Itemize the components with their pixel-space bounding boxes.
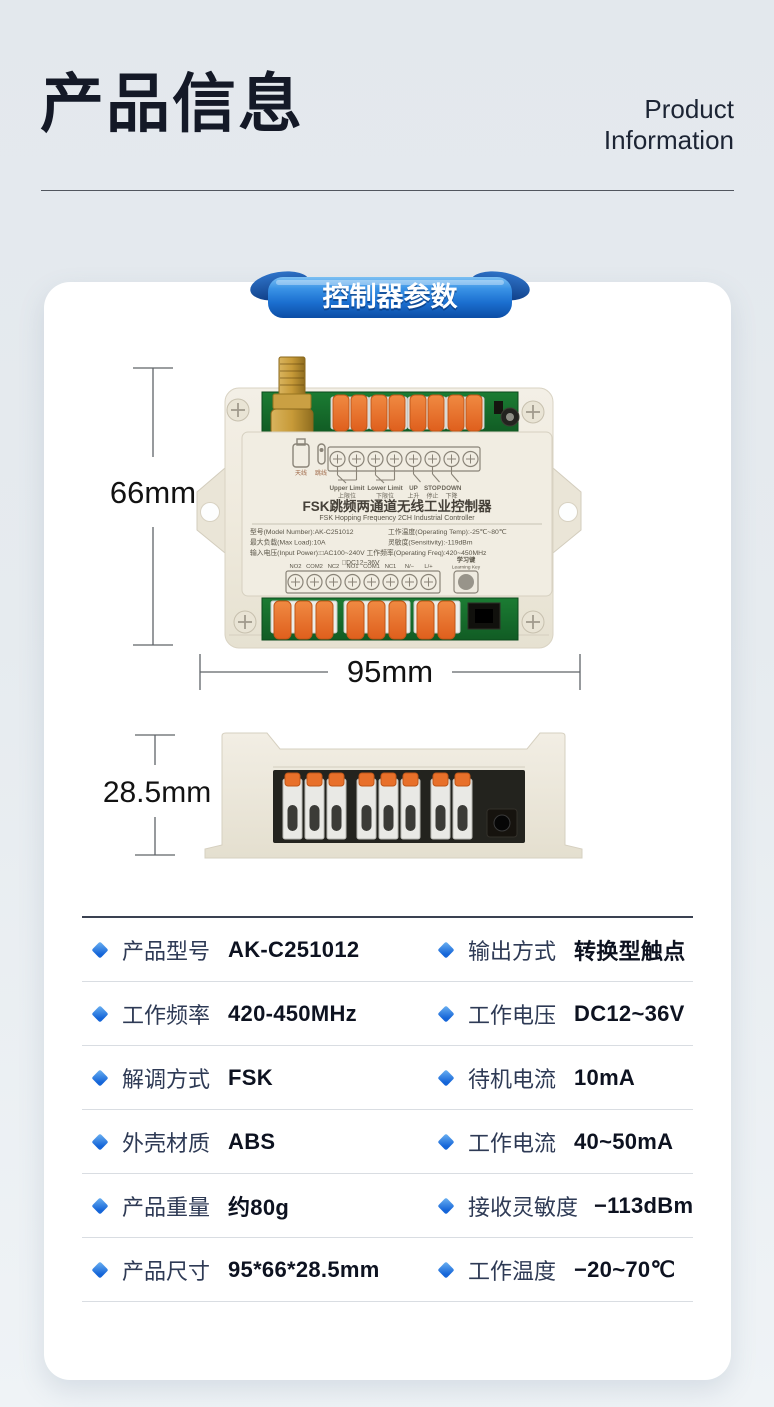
table-row: 产品重量 约80g 接收灵敏度 −113dBm xyxy=(82,1174,693,1238)
dimension-95mm-label: 95mm xyxy=(347,654,433,689)
diamond-bullet-icon xyxy=(92,1005,109,1022)
spec-cell: 输出方式 转换型触点 xyxy=(440,934,693,966)
spec-value: 40~50mA xyxy=(574,1129,673,1155)
svg-text:L/+: L/+ xyxy=(424,564,433,570)
spec-value: FSK xyxy=(228,1065,273,1091)
spec-cell: 待机电流 10mA xyxy=(440,1062,693,1094)
svg-text:工作温度(Operating Temp):-25℃~80℃: 工作温度(Operating Temp):-25℃~80℃ xyxy=(388,527,507,536)
spec-value: 420-450MHz xyxy=(228,1001,357,1027)
diamond-bullet-icon xyxy=(438,1069,455,1086)
spec-label: 输出方式 xyxy=(468,934,558,966)
page-subtitle: Product Information xyxy=(604,94,734,155)
antenna-connector xyxy=(271,357,313,435)
antenna-icon-label: 天线 xyxy=(295,469,307,477)
table-row: 工作频率 420-450MHz 工作电压 DC12~36V xyxy=(82,982,693,1046)
device-title-en: FSK Hopping Frequency 2CH Industrial Con… xyxy=(319,515,475,522)
svg-text:N/−: N/− xyxy=(405,564,415,570)
spec-value: 约80g xyxy=(228,1190,289,1222)
spec-value: 转换型触点 xyxy=(574,934,686,966)
spec-label: 产品型号 xyxy=(122,934,212,966)
spec-value: 10mA xyxy=(574,1065,635,1091)
table-row: 产品型号 AK-C251012 输出方式 转换型触点 xyxy=(82,918,693,982)
spec-value: −20~70℃ xyxy=(574,1257,675,1283)
page-title: 产品信息 xyxy=(40,72,304,136)
spec-cell: 外壳材质 ABS xyxy=(94,1126,440,1158)
spec-value: DC12~36V xyxy=(574,1001,685,1027)
svg-text:NC2: NC2 xyxy=(328,564,340,570)
spec-value: 95*66*28.5mm xyxy=(228,1257,380,1283)
controller-side-photo: 28.5mm xyxy=(95,725,605,870)
page-subtitle-line1: Product xyxy=(604,94,734,125)
jumper-icon-label: 跳线 xyxy=(315,469,327,477)
header-divider xyxy=(41,190,734,191)
spec-cell: 工作温度 −20~70℃ xyxy=(440,1254,693,1286)
learning-key-cap xyxy=(458,574,474,590)
svg-text:型号(Model Number):AK-C251012: 型号(Model Number):AK-C251012 xyxy=(250,527,354,536)
table-row: 产品尺寸 95*66*28.5mm 工作温度 −20~70℃ xyxy=(82,1238,693,1302)
page-subtitle-line2: Information xyxy=(604,125,734,156)
svg-text:最大负载(Max Load):10A: 最大负载(Max Load):10A xyxy=(250,538,326,547)
device-title-cn: FSK跳频两通道无线工业控制器 xyxy=(303,498,492,514)
diamond-bullet-icon xyxy=(92,1133,109,1150)
diamond-bullet-icon xyxy=(438,1197,455,1214)
left-ear-hole xyxy=(201,503,220,522)
product-info-page: 产品信息 Product Information 控制器参数 控制器参数 xyxy=(0,0,774,1407)
dimension-66mm-label: 66mm xyxy=(110,475,196,510)
svg-text:NC1: NC1 xyxy=(385,564,397,570)
svg-text:STOP: STOP xyxy=(424,485,441,492)
controller-front-photo: 66mm xyxy=(90,355,620,700)
table-row: 解调方式 FSK 待机电流 10mA xyxy=(82,1046,693,1110)
pcb-trimmer-slot xyxy=(506,413,514,421)
spec-label: 工作温度 xyxy=(468,1254,558,1286)
spec-value: −113dBm xyxy=(594,1193,693,1219)
diamond-bullet-icon xyxy=(438,1133,455,1150)
diamond-bullet-icon xyxy=(92,1069,109,1086)
svg-text:NO2: NO2 xyxy=(290,564,302,570)
spec-cell: 工作频率 420-450MHz xyxy=(94,998,440,1030)
svg-text:COM2: COM2 xyxy=(306,564,323,570)
spec-label: 产品尺寸 xyxy=(122,1254,212,1286)
side-push-button-cap xyxy=(494,815,510,831)
svg-text:Upper Limit: Upper Limit xyxy=(330,485,366,492)
learning-key-label-cn: 学习键 xyxy=(457,556,476,564)
svg-text:DOWN: DOWN xyxy=(442,485,462,492)
pcb-component xyxy=(494,401,503,414)
svg-text:COM1: COM1 xyxy=(363,564,380,570)
svg-text:UP: UP xyxy=(409,485,418,492)
diamond-bullet-icon xyxy=(438,1261,455,1278)
diamond-bullet-icon xyxy=(438,1005,455,1022)
spec-label: 接收灵敏度 xyxy=(468,1190,578,1222)
table-row: 外壳材质 ABS 工作电流 40~50mA xyxy=(82,1110,693,1174)
spec-label: 工作电压 xyxy=(468,998,558,1030)
spec-cell: 工作电流 40~50mA xyxy=(440,1126,693,1158)
spec-label: 产品重量 xyxy=(122,1190,212,1222)
svg-text:Lower Limit: Lower Limit xyxy=(367,485,403,492)
diamond-bullet-icon xyxy=(438,941,455,958)
diamond-bullet-icon xyxy=(92,941,109,958)
spec-value: AK-C251012 xyxy=(228,937,359,963)
dimension-28.5mm-label: 28.5mm xyxy=(103,776,211,809)
spec-table: 产品型号 AK-C251012 输出方式 转换型触点 工作频率 420-450M… xyxy=(82,916,693,1302)
badge-label: 控制器参数 xyxy=(323,281,459,312)
spec-cell: 产品重量 约80g xyxy=(94,1190,440,1222)
section-badge-ribbon: 控制器参数 控制器参数 xyxy=(242,260,538,322)
learning-key-label-en: Learning Key xyxy=(452,565,481,571)
svg-text:输入电压(Input Power):□AC100~240V: 输入电压(Input Power):□AC100~240V 工作频率(Opera… xyxy=(250,548,487,557)
diamond-bullet-icon xyxy=(92,1197,109,1214)
right-ear-hole xyxy=(559,503,578,522)
spec-label: 外壳材质 xyxy=(122,1126,212,1158)
spec-label: 工作电流 xyxy=(468,1126,558,1158)
spec-cell: 产品尺寸 95*66*28.5mm xyxy=(94,1254,440,1286)
svg-text:灵敏度(Sensitivity):-119dBm: 灵敏度(Sensitivity):-119dBm xyxy=(388,538,473,547)
spec-label: 工作频率 xyxy=(122,998,212,1030)
bottom-connector-slot xyxy=(475,609,493,623)
spec-cell: 解调方式 FSK xyxy=(94,1062,440,1094)
spec-label: 解调方式 xyxy=(122,1062,212,1094)
spec-value: ABS xyxy=(228,1129,275,1155)
spec-cell: 接收灵敏度 −113dBm xyxy=(440,1190,693,1222)
spec-cell: 产品型号 AK-C251012 xyxy=(94,934,440,966)
bottom-terminal-levers xyxy=(274,601,455,639)
spec-cell: 工作电压 DC12~36V xyxy=(440,998,693,1030)
svg-text:NO1: NO1 xyxy=(347,564,359,570)
diamond-bullet-icon xyxy=(92,1261,109,1278)
spec-label: 待机电流 xyxy=(468,1062,558,1094)
